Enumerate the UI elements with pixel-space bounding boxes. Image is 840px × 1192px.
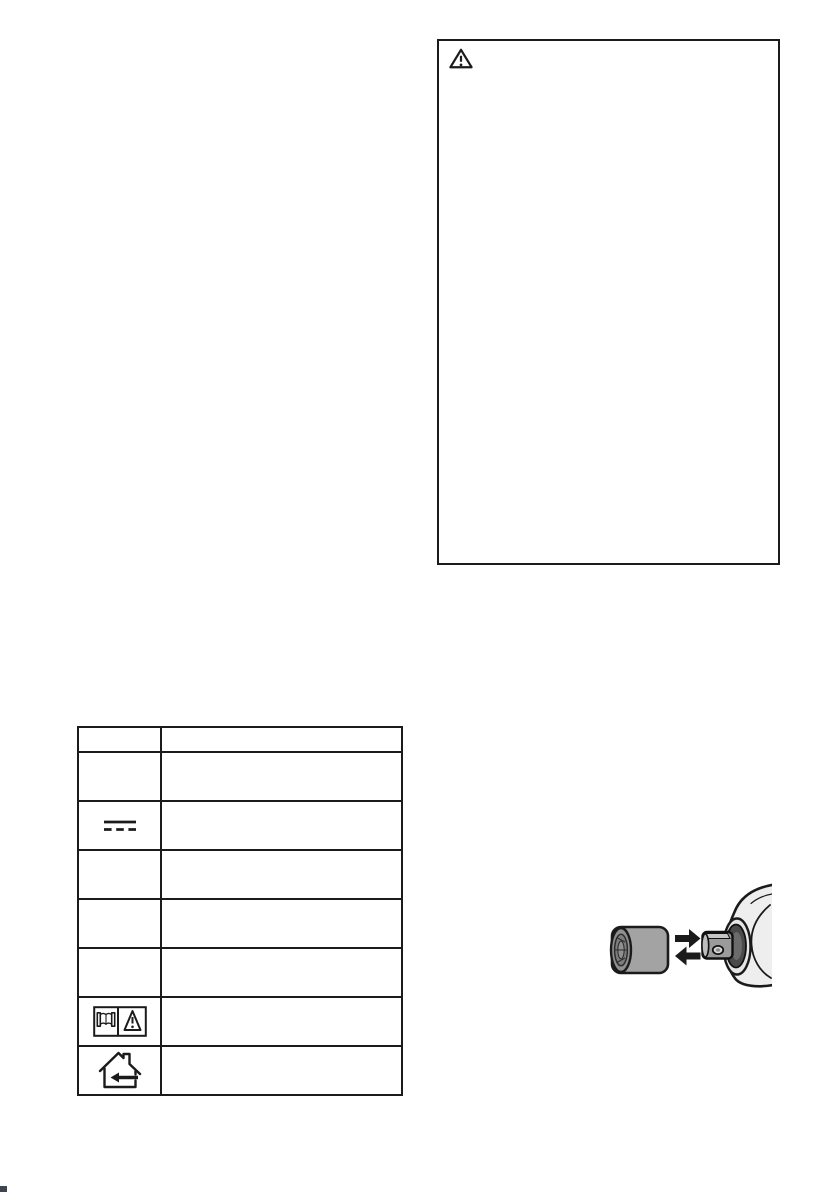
description-cell [161,948,402,997]
description-cell [161,1046,402,1095]
description-cell [161,997,402,1046]
description-cell [161,727,402,752]
table-row [78,850,402,899]
socket-attachment-figure [600,878,772,993]
indoor-use-only-icon [97,1050,143,1092]
symbol-cell [78,801,161,850]
description-cell [161,899,402,948]
symbol-cell [78,997,161,1046]
symbol-cell [78,948,161,997]
symbols-table [77,726,403,1096]
symbol-cell [78,850,161,899]
warning-box [437,39,780,565]
symbol-cell [78,1046,161,1095]
table-row [78,948,402,997]
description-cell [161,850,402,899]
scan-artifact-mark [0,1186,7,1192]
table-row [78,727,402,752]
table-row [78,752,402,801]
table-row [78,997,402,1046]
warning-triangle-icon [448,47,474,70]
description-cell [161,752,402,801]
remove-arrow-icon [675,947,701,966]
symbols-table-body [78,727,402,1095]
impact-socket-illustration [611,927,668,973]
description-cell [161,801,402,850]
insert-arrow-icon [675,929,701,948]
symbol-cell [78,727,161,752]
read-manual-warning-icon [93,1006,147,1037]
symbol-cell [78,752,161,801]
square-drive-anvil-illustration [702,932,733,959]
table-row [78,899,402,948]
table-row [78,1046,402,1095]
manual-page [0,0,840,1192]
symbol-cell [78,899,161,948]
table-row [78,801,402,850]
direct-current-icon [102,819,138,833]
